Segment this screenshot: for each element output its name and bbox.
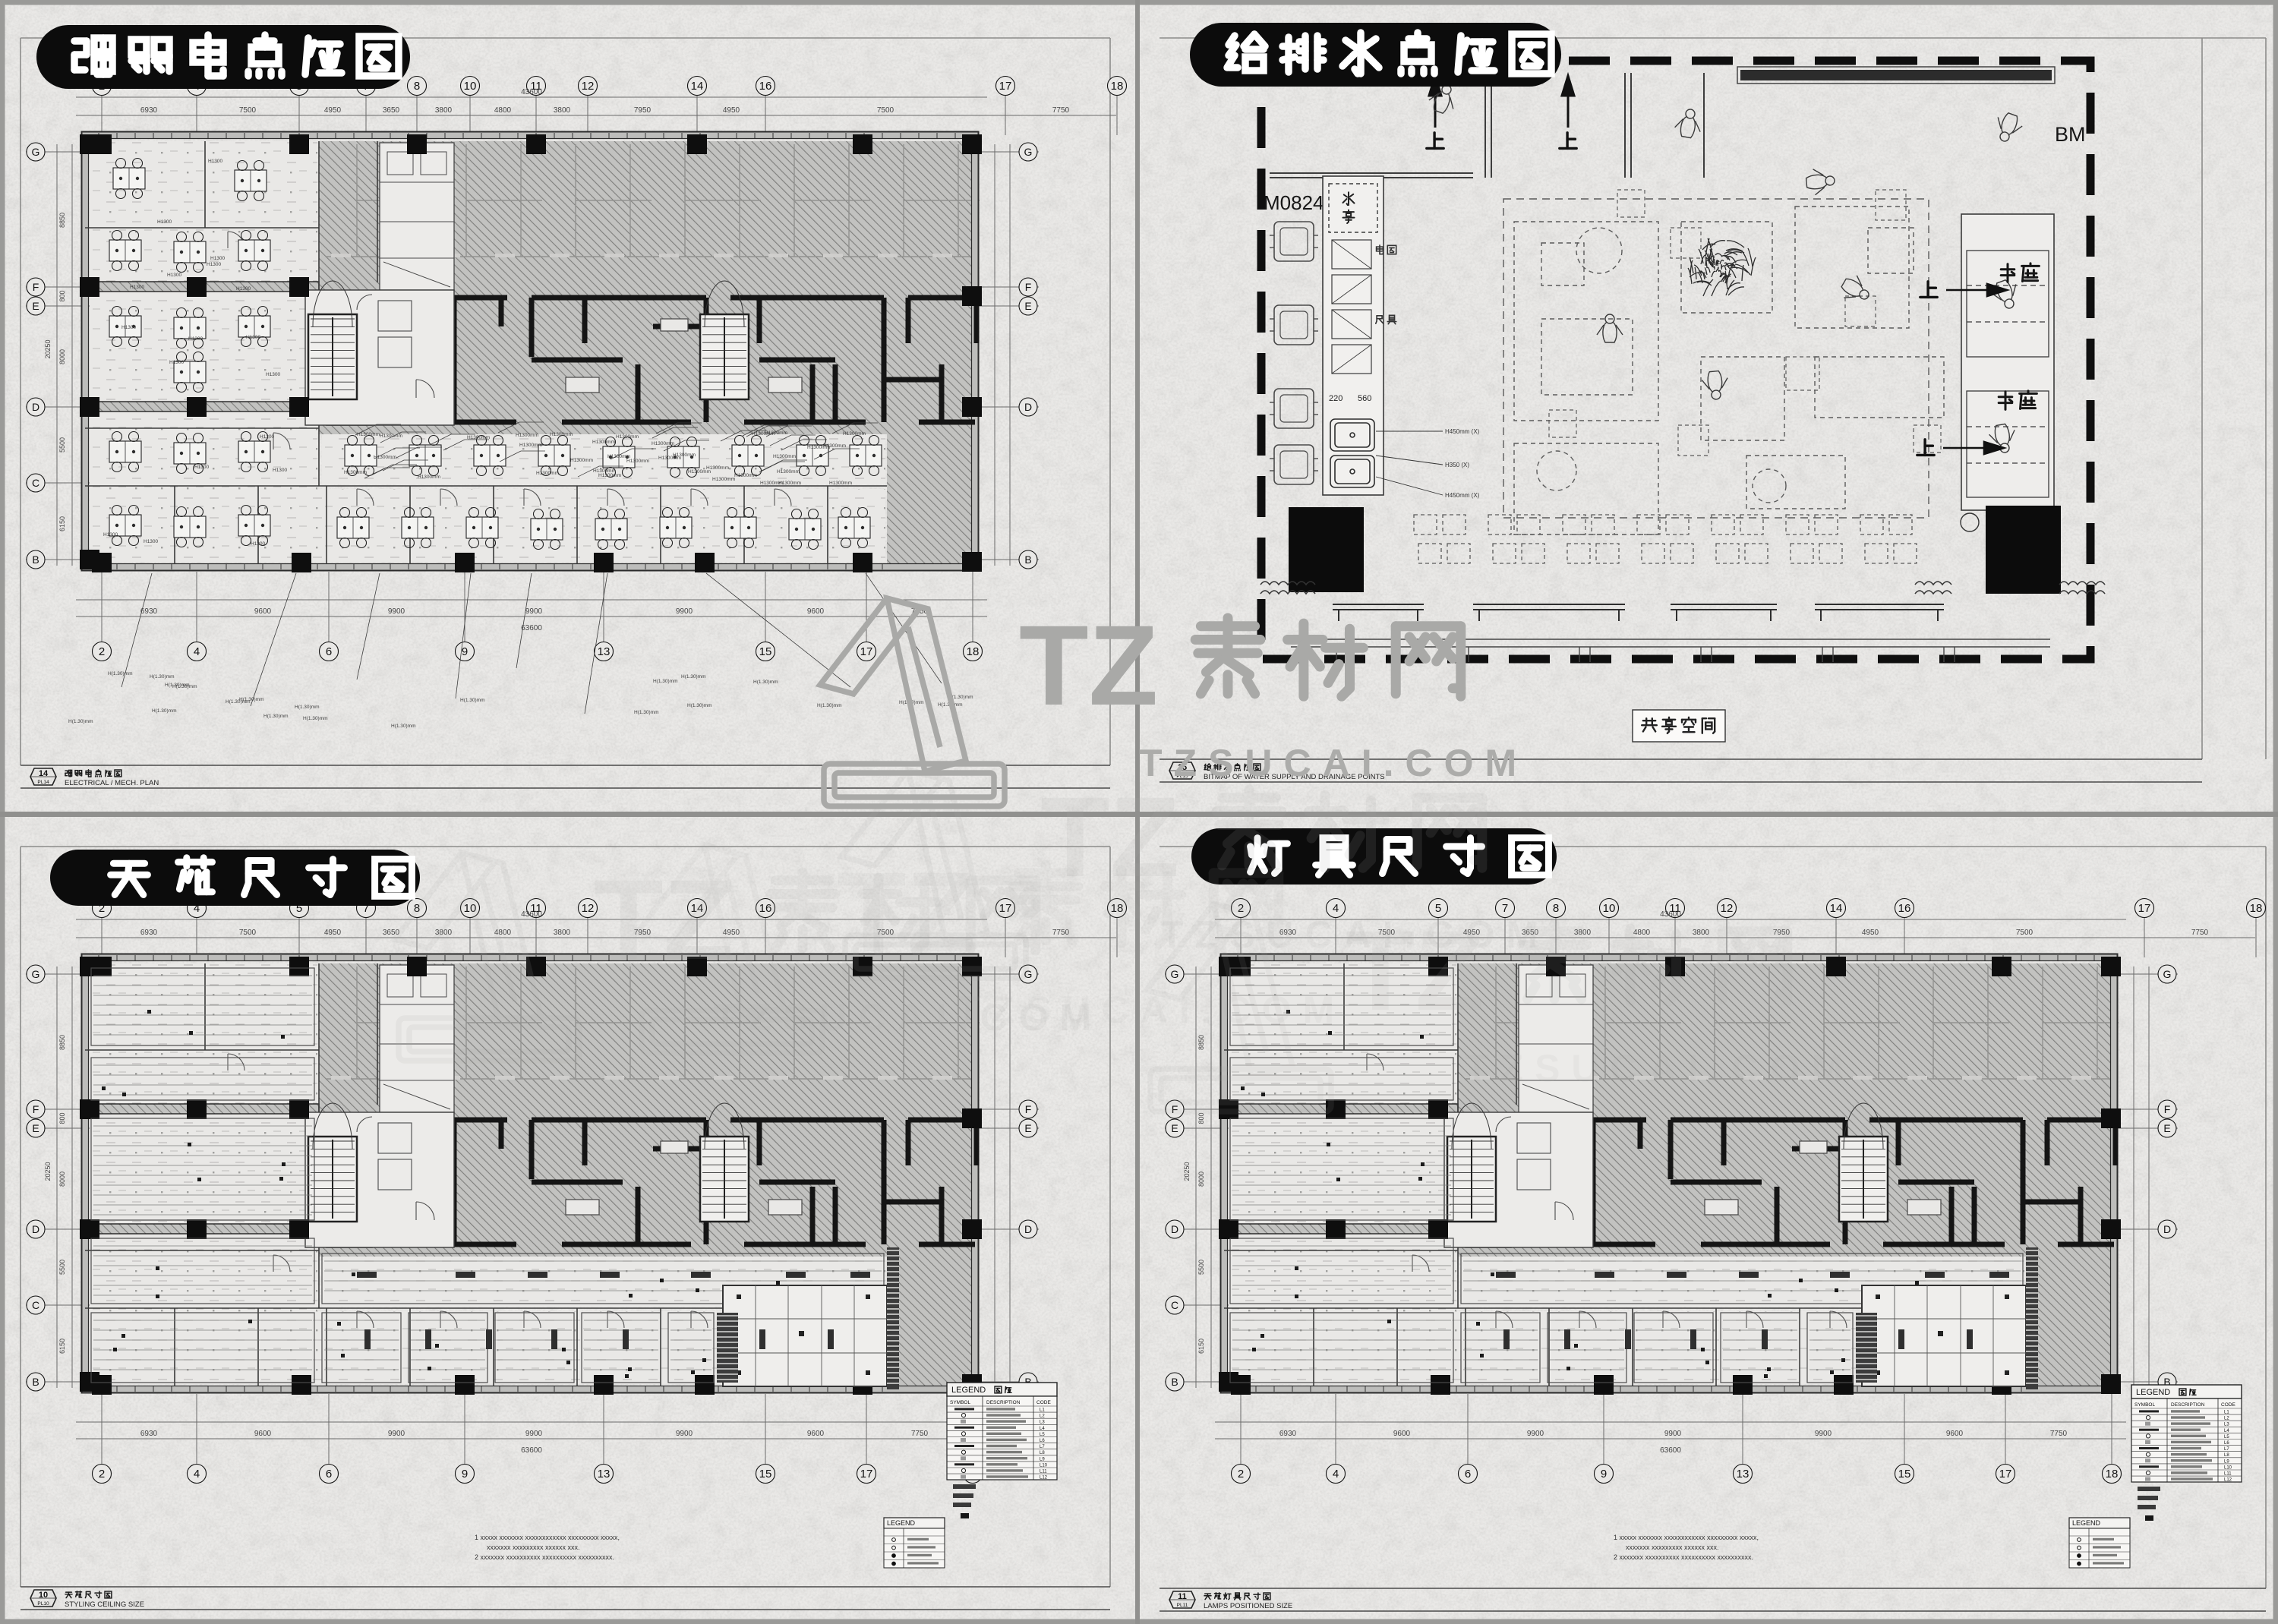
svg-text:H1300: H1300: [266, 372, 281, 377]
svg-text:H(1.30)mm: H(1.30)mm: [150, 674, 175, 680]
svg-text:H1300: H1300: [273, 468, 288, 473]
svg-text:xxxxxxx xxxxxxxxx xxxxxx xxx.: xxxxxxx xxxxxxxxx xxxxxx xxx.: [1626, 1544, 1719, 1551]
svg-text:E: E: [1171, 1122, 1178, 1134]
svg-text:20250: 20250: [44, 339, 52, 358]
svg-text:H(1.30)mm: H(1.30)mm: [152, 708, 177, 714]
svg-text:LEGEND: LEGEND: [2136, 1388, 2170, 1397]
svg-text:14: 14: [691, 80, 704, 93]
svg-text:12: 12: [582, 80, 595, 93]
svg-text:12: 12: [1721, 902, 1734, 915]
svg-text:18: 18: [2106, 1468, 2119, 1481]
svg-text:H1300: H1300: [236, 286, 251, 292]
svg-text:20250: 20250: [1183, 1162, 1191, 1181]
svg-text:H1300: H1300: [251, 541, 266, 547]
svg-text:43600: 43600: [521, 910, 542, 919]
svg-text:4950: 4950: [324, 929, 342, 937]
svg-text:F: F: [33, 281, 39, 293]
svg-text:F: F: [33, 1103, 39, 1115]
svg-text:43600: 43600: [521, 88, 542, 96]
svg-text:3800: 3800: [554, 929, 571, 937]
svg-text:H(1.30)mm: H(1.30)mm: [226, 699, 251, 705]
svg-text:5500: 5500: [58, 437, 66, 453]
svg-text:800: 800: [58, 290, 66, 301]
svg-text:H1300: H1300: [169, 360, 185, 365]
svg-text:H(1.30)mm: H(1.30)mm: [653, 679, 678, 684]
svg-text:H1300: H1300: [246, 335, 261, 340]
svg-text:L5: L5: [2224, 1435, 2229, 1440]
svg-text:H1300mm: H1300mm: [344, 470, 367, 475]
svg-text:7750: 7750: [2191, 929, 2209, 937]
svg-text:H1300mm: H1300mm: [592, 440, 615, 445]
svg-text:9900: 9900: [676, 1430, 693, 1438]
svg-text:H(1.30)mm: H(1.30)mm: [634, 710, 659, 715]
svg-text:H1300mm: H1300mm: [516, 433, 538, 438]
svg-text:12: 12: [582, 902, 595, 915]
svg-text:17: 17: [860, 645, 873, 658]
svg-text:9900: 9900: [1664, 1430, 1682, 1438]
svg-text:H1300: H1300: [208, 159, 223, 164]
svg-text:PL10: PL10: [37, 1601, 49, 1607]
svg-text:L9: L9: [1040, 1457, 1045, 1462]
svg-text:TZSUCAI.COM: TZSUCAI.COM: [1466, 1047, 1854, 1089]
svg-text:800: 800: [58, 1112, 66, 1124]
svg-text:H1300: H1300: [157, 219, 172, 225]
svg-text:H1300mm: H1300mm: [829, 481, 852, 486]
svg-text:E: E: [1024, 300, 1031, 312]
svg-text:H1300mm: H1300mm: [536, 471, 559, 476]
svg-text:H1300mm: H1300mm: [760, 481, 783, 486]
svg-text:L8: L8: [1040, 1451, 1045, 1455]
svg-text:F: F: [2164, 1103, 2171, 1115]
svg-text:H1300mm: H1300mm: [598, 473, 621, 478]
svg-text:H1300mm: H1300mm: [626, 459, 649, 464]
svg-text:6: 6: [326, 645, 332, 658]
svg-text:13: 13: [598, 1468, 611, 1481]
svg-text:H1300mm: H1300mm: [550, 432, 573, 437]
svg-text:8850: 8850: [58, 213, 66, 228]
svg-text:H1300: H1300: [210, 256, 226, 261]
svg-text:9600: 9600: [807, 1430, 825, 1438]
svg-text:H1300mm: H1300mm: [374, 455, 396, 460]
svg-text:2: 2: [99, 645, 105, 658]
svg-text:4950: 4950: [723, 106, 740, 115]
svg-text:H(1.30)mm: H(1.30)mm: [391, 724, 416, 729]
svg-text:H1300: H1300: [260, 434, 275, 440]
svg-text:CODE: CODE: [1036, 1400, 1051, 1405]
svg-text:H1300: H1300: [103, 532, 118, 538]
svg-text:43600: 43600: [1660, 910, 1681, 919]
svg-text:L2: L2: [2224, 1417, 2229, 1421]
svg-text:2: 2: [99, 1468, 105, 1481]
svg-text:63600: 63600: [521, 1446, 542, 1455]
svg-text:9: 9: [462, 1468, 468, 1481]
svg-text:7500: 7500: [239, 106, 257, 115]
svg-text:H1300mm: H1300mm: [712, 477, 735, 482]
svg-text:TZ: TZ: [837, 848, 976, 976]
svg-text:G: G: [2163, 968, 2172, 980]
svg-text:L8: L8: [2224, 1453, 2229, 1458]
svg-text:7950: 7950: [634, 106, 652, 115]
svg-text:H1300mm: H1300mm: [765, 430, 787, 436]
svg-text:8000: 8000: [1197, 1171, 1205, 1187]
svg-text:H1300mm: H1300mm: [418, 475, 440, 480]
svg-text:E: E: [32, 1122, 39, 1134]
svg-text:4: 4: [1333, 1468, 1339, 1481]
svg-text:TZSUCAI.COM: TZSUCAI.COM: [957, 989, 1346, 1031]
svg-text:15: 15: [759, 1468, 772, 1481]
svg-text:L7: L7: [1040, 1445, 1045, 1449]
svg-text:5500: 5500: [58, 1260, 66, 1275]
svg-text:9900: 9900: [1527, 1430, 1544, 1438]
svg-text:9600: 9600: [807, 607, 825, 616]
svg-text:4950: 4950: [1862, 929, 1879, 937]
svg-text:H1300mm: H1300mm: [706, 465, 729, 471]
svg-text:D: D: [32, 1223, 39, 1235]
svg-text:H450mm (X): H450mm (X): [1445, 428, 1480, 435]
svg-text:BM: BM: [2055, 123, 2086, 146]
svg-text:H1300: H1300: [188, 336, 204, 342]
svg-text:9900: 9900: [525, 1430, 543, 1438]
svg-text:H1300mm: H1300mm: [807, 445, 830, 450]
svg-text:6930: 6930: [1279, 1430, 1297, 1438]
svg-text:B: B: [1171, 1376, 1178, 1388]
svg-text:C: C: [32, 477, 39, 489]
svg-text:TZSUCAI.COM: TZSUCAI.COM: [1139, 742, 1528, 784]
svg-text:15: 15: [759, 645, 772, 658]
svg-text:H1300mm: H1300mm: [773, 454, 796, 459]
svg-text:H1300mm: H1300mm: [467, 435, 490, 440]
svg-text:H(1.30)mm: H(1.30)mm: [108, 671, 133, 676]
svg-text:C: C: [32, 1299, 39, 1311]
svg-text:L11: L11: [2224, 1472, 2232, 1477]
svg-text:L12: L12: [1040, 1476, 1048, 1481]
svg-text:H1300mm: H1300mm: [357, 432, 380, 437]
svg-text:LEGEND: LEGEND: [887, 1519, 916, 1527]
svg-text:9900: 9900: [525, 607, 543, 616]
svg-text:G: G: [32, 968, 40, 980]
svg-text:E: E: [2163, 1122, 2170, 1134]
svg-text:H350 (X): H350 (X): [1445, 462, 1469, 468]
svg-text:D: D: [2163, 1223, 2171, 1235]
svg-text:H(1.30)mm: H(1.30)mm: [68, 719, 93, 724]
svg-text:H(1.30)mm: H(1.30)mm: [295, 705, 320, 710]
svg-text:4: 4: [194, 645, 200, 658]
svg-text:9900: 9900: [1815, 1430, 1832, 1438]
svg-text:D: D: [1171, 1223, 1178, 1235]
svg-text:1 xxxxx xxxxxxx xxxxxxxxxxxx x: 1 xxxxx xxxxxxx xxxxxxxxxxxx xxxxxxxxx x…: [475, 1534, 620, 1541]
svg-text:9900: 9900: [388, 607, 405, 616]
svg-text:3800: 3800: [1693, 929, 1710, 937]
svg-text:TZ: TZ: [1040, 773, 1179, 900]
svg-text:16: 16: [1898, 902, 1911, 915]
svg-text:17: 17: [1999, 1468, 2012, 1481]
svg-text:14: 14: [1830, 902, 1843, 915]
svg-text:D: D: [1024, 401, 1032, 413]
svg-text:4800: 4800: [494, 106, 512, 115]
svg-text:H1300mm: H1300mm: [570, 458, 593, 463]
svg-text:B: B: [32, 553, 39, 566]
svg-text:SYMBOL: SYMBOL: [950, 1400, 970, 1405]
svg-text:H(1.30)mm: H(1.30)mm: [303, 716, 328, 721]
svg-text:6150: 6150: [58, 1339, 66, 1354]
svg-text:5500: 5500: [1197, 1260, 1205, 1275]
svg-text:L3: L3: [1040, 1421, 1045, 1425]
svg-text:H450mm (X): H450mm (X): [1445, 492, 1480, 499]
svg-text:L4: L4: [1040, 1427, 1045, 1431]
svg-text:C: C: [1171, 1299, 1178, 1311]
svg-text:G: G: [32, 146, 40, 158]
svg-text:H(1.30)mm: H(1.30)mm: [687, 703, 712, 708]
svg-text:ELECTRICAL / MECH. PLAN: ELECTRICAL / MECH. PLAN: [65, 779, 159, 787]
svg-text:H1300: H1300: [207, 262, 222, 267]
svg-text:xxxxxxx xxxxxxxxx xxxxxx xxx.: xxxxxxx xxxxxxxxx xxxxxx xxx.: [487, 1544, 580, 1551]
svg-text:H1300: H1300: [121, 325, 137, 330]
svg-text:6930: 6930: [140, 929, 158, 937]
svg-text:DESCRIPTION: DESCRIPTION: [986, 1400, 1021, 1405]
svg-text:6930: 6930: [140, 106, 158, 115]
svg-text:LEGEND: LEGEND: [2072, 1519, 2101, 1527]
svg-text:PL14: PL14: [37, 780, 49, 785]
svg-text:E: E: [32, 300, 39, 312]
svg-text:7750: 7750: [911, 1430, 929, 1438]
svg-text:H1300mm: H1300mm: [380, 434, 402, 439]
svg-text:H1300: H1300: [144, 539, 159, 544]
svg-text:9900: 9900: [388, 1430, 405, 1438]
svg-text:4800: 4800: [1633, 929, 1651, 937]
svg-text:E: E: [1024, 1122, 1031, 1134]
svg-text:9: 9: [462, 645, 468, 658]
svg-text:18: 18: [1111, 80, 1124, 93]
svg-text:7750: 7750: [1052, 106, 1070, 115]
svg-text:L9: L9: [2224, 1459, 2229, 1464]
svg-text:8: 8: [414, 80, 420, 93]
svg-text:H1300: H1300: [194, 465, 210, 470]
svg-text:H(1.30)mm: H(1.30)mm: [172, 684, 197, 689]
svg-text:4: 4: [194, 1468, 200, 1481]
svg-text:CODE: CODE: [2221, 1402, 2235, 1408]
svg-text:6930: 6930: [140, 607, 158, 616]
svg-text:H(1.30)mm: H(1.30)mm: [263, 714, 289, 719]
svg-text:6150: 6150: [1197, 1339, 1205, 1354]
svg-text:L10: L10: [1040, 1463, 1048, 1468]
svg-text:560: 560: [1358, 394, 1371, 403]
svg-text:H(1.30)mm: H(1.30)mm: [681, 674, 706, 680]
svg-text:2 xxxxxxx xxxxxxxxxx xxxxxxxxx: 2 xxxxxxx xxxxxxxxxx xxxxxxxxxx xxxxxxxx…: [475, 1553, 614, 1561]
svg-text:LEGEND: LEGEND: [951, 1386, 986, 1395]
svg-text:PL11: PL11: [1177, 1603, 1188, 1608]
svg-text:3650: 3650: [383, 106, 400, 115]
svg-text:L1: L1: [2224, 1411, 2229, 1415]
svg-text:H1300mm: H1300mm: [616, 434, 639, 440]
svg-text:D: D: [32, 401, 39, 413]
svg-text:8000: 8000: [58, 1171, 66, 1187]
svg-text:13: 13: [598, 645, 611, 658]
svg-text:L10: L10: [2224, 1465, 2232, 1470]
svg-text:17: 17: [860, 1468, 873, 1481]
svg-text:L12: L12: [2224, 1478, 2232, 1483]
svg-text:220: 220: [1329, 394, 1343, 403]
svg-text:2: 2: [1238, 1468, 1244, 1481]
svg-text:G: G: [1171, 968, 1179, 980]
svg-text:20250: 20250: [44, 1162, 52, 1181]
svg-text:4950: 4950: [324, 106, 342, 115]
svg-text:H(1.30)mm: H(1.30)mm: [460, 698, 485, 703]
svg-text:L6: L6: [2224, 1441, 2229, 1446]
svg-text:M0824: M0824: [1264, 191, 1324, 214]
svg-text:L2: L2: [1040, 1414, 1045, 1419]
svg-text:B: B: [32, 1376, 39, 1388]
svg-text:TZ: TZ: [1019, 601, 1158, 729]
svg-text:LAMPS POSITIONED SIZE: LAMPS POSITIONED SIZE: [1204, 1602, 1292, 1610]
svg-text:H1300mm: H1300mm: [777, 469, 800, 475]
svg-text:7500: 7500: [877, 106, 894, 115]
svg-text:9600: 9600: [254, 607, 272, 616]
svg-text:13: 13: [1737, 1468, 1750, 1481]
svg-text:D: D: [1024, 1223, 1032, 1235]
svg-text:9: 9: [1601, 1468, 1607, 1481]
svg-text:6: 6: [326, 1468, 332, 1481]
svg-text:F: F: [1025, 281, 1032, 293]
svg-text:B: B: [1024, 553, 1031, 566]
svg-text:6930: 6930: [140, 1430, 158, 1438]
svg-text:7500: 7500: [239, 929, 257, 937]
svg-text:16: 16: [759, 80, 772, 93]
svg-text:H1300: H1300: [130, 285, 145, 290]
svg-text:H1300mm: H1300mm: [843, 431, 866, 437]
svg-text:L4: L4: [2224, 1429, 2229, 1433]
svg-text:9600: 9600: [254, 1430, 272, 1438]
svg-text:6: 6: [1465, 1468, 1471, 1481]
svg-text:3800: 3800: [554, 106, 571, 115]
svg-text:18: 18: [2250, 902, 2263, 915]
svg-text:L3: L3: [2224, 1423, 2229, 1427]
svg-text:H1300mm: H1300mm: [734, 473, 757, 478]
svg-text:10: 10: [464, 80, 477, 93]
svg-text:9600: 9600: [1946, 1430, 1964, 1438]
svg-text:L6: L6: [1040, 1439, 1045, 1443]
svg-text:H(1.30)mm: H(1.30)mm: [817, 703, 842, 708]
svg-text:SYMBOL: SYMBOL: [2134, 1402, 2155, 1408]
svg-text:6150: 6150: [58, 516, 66, 531]
svg-text:H1300mm: H1300mm: [519, 443, 542, 448]
svg-text:H(1.30)mm: H(1.30)mm: [753, 680, 778, 685]
svg-text:63600: 63600: [521, 624, 542, 632]
svg-text:2 xxxxxxx xxxxxxxxxx xxxxxxxxx: 2 xxxxxxx xxxxxxxxxx xxxxxxxxxx xxxxxxxx…: [1614, 1553, 1753, 1561]
svg-text:L5: L5: [1040, 1433, 1045, 1437]
svg-text:7500: 7500: [2016, 929, 2033, 937]
svg-text:18: 18: [967, 645, 980, 658]
svg-text:F: F: [1025, 1103, 1032, 1115]
svg-text:8000: 8000: [58, 349, 66, 364]
svg-text:7750: 7750: [2050, 1430, 2068, 1438]
svg-text:9600: 9600: [1393, 1430, 1411, 1438]
svg-text:8: 8: [1553, 902, 1559, 915]
svg-text:15: 15: [1898, 1468, 1911, 1481]
svg-text:17: 17: [999, 80, 1012, 93]
svg-text:17: 17: [2138, 902, 2151, 915]
svg-text:L11: L11: [1040, 1470, 1047, 1474]
svg-text:63600: 63600: [1660, 1446, 1681, 1455]
svg-text:H1300mm: H1300mm: [652, 441, 674, 446]
svg-text:H1300mm: H1300mm: [673, 453, 696, 458]
svg-text:1 xxxxx xxxxxxx xxxxxxxxxxxx x: 1 xxxxx xxxxxxx xxxxxxxxxxxx xxxxxxxxx x…: [1614, 1534, 1759, 1541]
svg-text:8850: 8850: [58, 1035, 66, 1050]
svg-text:L1: L1: [1040, 1408, 1045, 1413]
svg-text:STYLING CEILING SIZE: STYLING CEILING SIZE: [65, 1600, 144, 1609]
svg-text:H1300: H1300: [167, 273, 182, 278]
svg-text:8850: 8850: [1197, 1035, 1205, 1050]
svg-text:TZ: TZ: [1346, 907, 1484, 1034]
svg-text:9900: 9900: [676, 607, 693, 616]
svg-text:DESCRIPTION: DESCRIPTION: [2171, 1402, 2205, 1408]
svg-text:10: 10: [1603, 902, 1616, 915]
svg-text:3800: 3800: [435, 106, 453, 115]
svg-text:G: G: [1024, 146, 1033, 158]
svg-text:L7: L7: [2224, 1447, 2229, 1452]
